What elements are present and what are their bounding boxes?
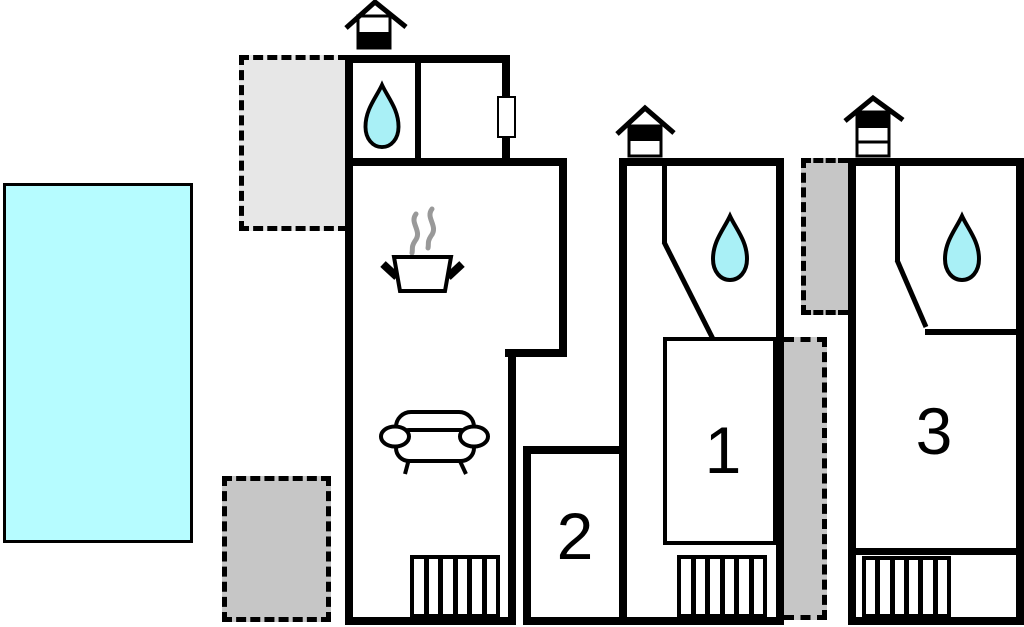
terrace-strip-upper-right [801, 158, 848, 315]
room-label-3: 3 [916, 398, 953, 464]
water-drop-icon-middle [710, 213, 750, 283]
room-label-2: 2 [557, 503, 594, 569]
wall-main-right-lower [508, 349, 516, 625]
terrace-upper-left [239, 55, 348, 231]
wall-middle-top [619, 158, 784, 166]
door-icon [497, 96, 516, 138]
wall-main-mid-horizontal [345, 158, 567, 166]
wall-middle-entry-divider [662, 166, 667, 243]
wall-middle-bottom [523, 617, 784, 625]
wall-unit2-top [523, 446, 627, 454]
steam-icon [428, 209, 434, 248]
steam-icon [412, 214, 418, 253]
room-label-1: 1 [705, 417, 742, 483]
wall-middle-right [776, 158, 784, 625]
swimming-pool [3, 183, 193, 543]
stairs-icon-right [862, 556, 951, 618]
wall-middle-left [619, 158, 627, 625]
diagonal-wall-right [892, 255, 932, 333]
wall-main-bottom [345, 617, 516, 625]
chimney-icon-main [341, 0, 409, 50]
wall-main-bump-right [559, 158, 567, 357]
wall-right-entry-divider [895, 166, 900, 261]
water-drop-icon-right [942, 213, 982, 283]
sofa-icon [374, 404, 494, 480]
floor-plan-canvas: 1 2 3 [0, 0, 1024, 627]
stairs-icon-middle [677, 555, 767, 618]
cooking-pot-icon [378, 200, 470, 296]
wall-main-top [345, 55, 510, 63]
wall-unit2-left [523, 446, 531, 625]
wall-right-landing [856, 548, 1016, 555]
wall-main-left [345, 55, 353, 625]
wall-right-right [1016, 158, 1024, 625]
wall-right-bath-bottom [925, 329, 1020, 335]
wall-right-bottom [848, 617, 1024, 625]
wall-right-left [848, 158, 856, 625]
water-drop-icon-main [361, 82, 403, 150]
chimney-icon-right [842, 94, 908, 158]
chimney-icon-middle [612, 104, 678, 158]
stairs-icon-main [410, 555, 500, 618]
terrace-lower-left [222, 476, 331, 622]
wall-right-top [848, 158, 1024, 166]
wall-bathroom-divider [415, 63, 421, 158]
terrace-strip-lower-right [784, 337, 827, 620]
